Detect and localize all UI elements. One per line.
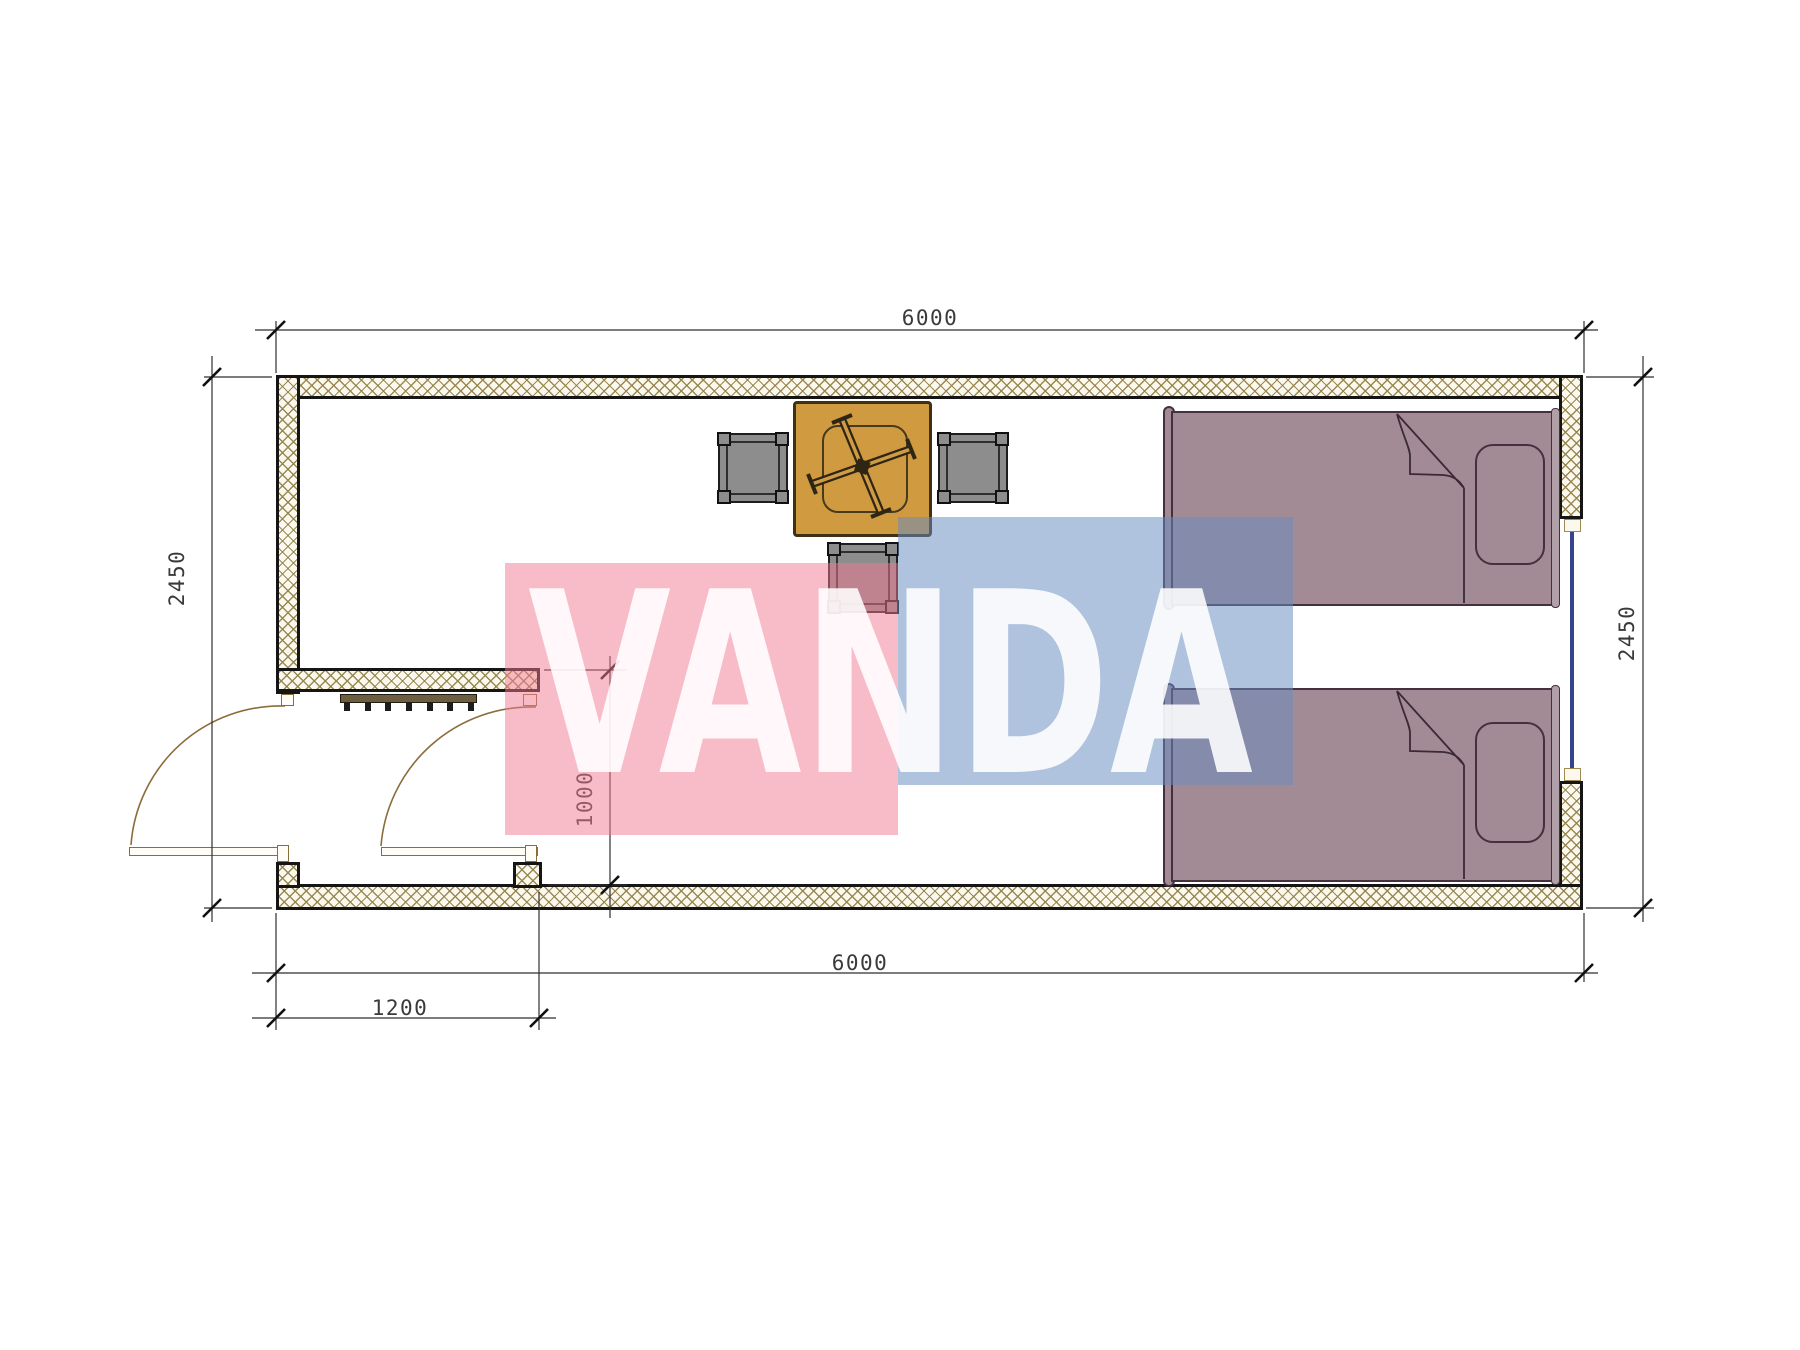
floor-plan-canvas: 6000 2450 2450 1000 6000 1200 VANDA: [0, 0, 1800, 1350]
watermark-text: VANDA: [528, 539, 1253, 832]
watermark-text-layer: VANDA: [0, 0, 1800, 1350]
